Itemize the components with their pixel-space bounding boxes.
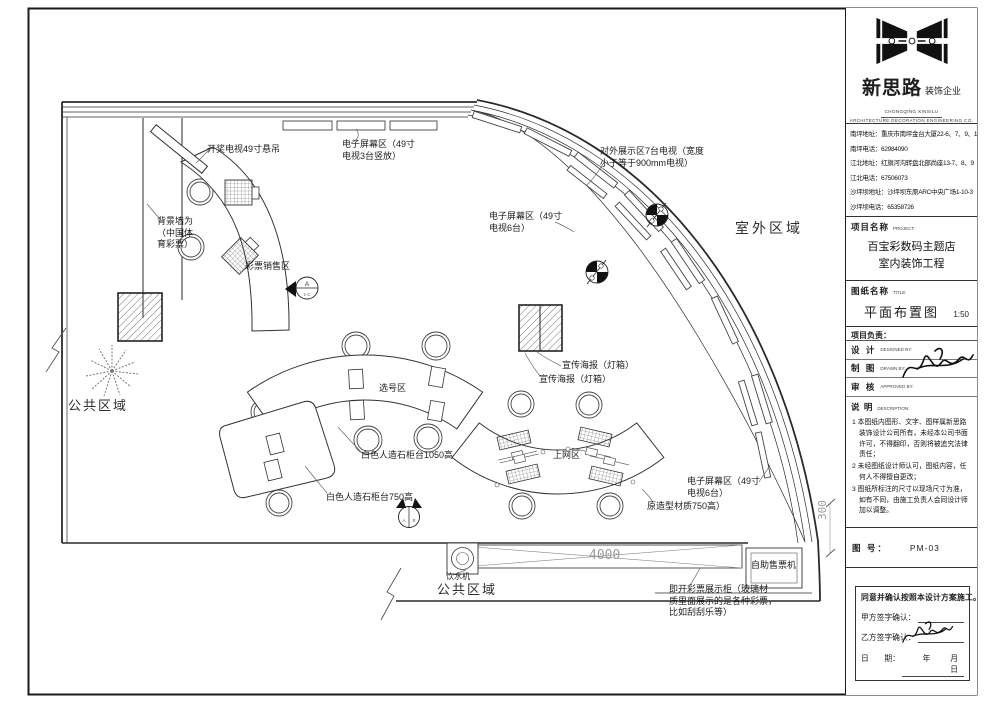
svg-text:A: A [402,518,405,523]
sheet-number-section: 图 号： PM-03 [846,528,977,568]
project-name: 百宝彩数码主题店 室内装饰工程 [846,239,977,272]
note-3: 3 图纸所标注的尺寸以现场尺寸为准，如有不同，由施工负责人会同设计师加以调整。 [852,485,973,517]
confirmation-section: 同意并确认按照本设计方案施工。 甲方签字确认： 乙方签字确认： 日 期： 年 月… [846,568,977,695]
designer-signature [897,343,977,391]
project-label: 项目名称 [851,221,889,233]
company-name-en1: CHONGQING XINSILU [881,109,943,118]
contact-line: 南坪电话：62984090 [850,143,977,158]
contact-line: 南坪地址：重庆市南坪金台大厦22-6、7、9、10 [850,128,977,143]
contact-line: 江北电话：67506073 [850,172,977,187]
water-dispenser [447,543,478,574]
party-b-signature [894,618,960,652]
company-contacts: 南坪地址：重庆市南坪金台大厦22-6、7、9、10 南坪电话：62984090 … [846,124,977,217]
drawing-title-section: 图纸名称 TITLE: 平面布置图 1:50 [846,281,977,327]
svg-text:B: B [412,518,415,523]
sheet-number-label: 图 号： [846,542,888,554]
ticket-vending-machine [746,548,802,588]
roles-section: 设 计DESIGNED BY: 制 图DRAWN BY: 审 核APPROVED… [846,341,977,397]
hanging-tv [151,125,208,174]
plant [86,345,138,396]
drawing-title-label-en: TITLE: [893,290,907,295]
contact-line: 沙坪坝电话：65358726 [850,201,977,216]
project-label-en: PROJECT: [893,226,915,231]
title-block: 新思路装饰企业 CHONGQING XINSILU ARCHITECTURE D… [845,8,977,695]
confirmation-box: 同意并确认按照本设计方案施工。 甲方签字确认： 乙方签字确认： 日 期： 年 月… [855,586,970,681]
contact-line: 沙坪坝地址：沙坪坝东原ARC中央广场1-10-3 [850,186,977,201]
drawing-scale: 1:50 [953,310,969,319]
drawing-title: 平面布置图 [864,302,939,321]
svg-text:1-C: 1-C [303,292,311,297]
description-label: 说 明 [851,401,873,413]
section-marker-1 [646,203,668,227]
confirmation-statement: 同意并确认按照本设计方案施工。 [861,592,964,603]
note-2: 2 未经图纸设计师认可，图纸内容，任何人不得擅自更改； [852,462,973,484]
date-units: 年 月 日 [902,653,964,677]
drawing-title-label: 图纸名称 [851,285,889,297]
project-section: 项目名称 PROJECT: 百宝彩数码主题店 室内装饰工程 [846,217,977,281]
contact-line: 江北地址：红旗河沟转盘北部尚座13-7、8、9 [850,157,977,172]
top-wall-tvs [283,121,437,130]
elevation-marker-b: A B [396,498,422,528]
drawing-sheet: A 1-C A B 开奖电视49寸悬吊电子屏幕区（49寸 电视3台竖放） [0,0,1000,703]
company-name-suffix: 装饰企业 [925,86,961,96]
company-logo-section: 新思路装饰企业 CHONGQING XINSILU ARCHITECTURE D… [846,8,977,124]
note-1: 1 本图纸内图形、文字、图样属新思路装饰设计公司所有，未经本公司书面许可，不得翻… [852,418,973,461]
dimension-300 [826,499,835,557]
instant-ticket-cabinet [450,545,742,568]
company-name-cn: 新思路 [862,78,922,99]
party-b-sign-row: 乙方签字确认： [861,632,964,643]
svg-text:A: A [305,281,310,288]
company-name: 新思路装饰企业 [846,73,977,100]
section-marker-2 [586,260,608,284]
pillar-hatched [118,293,162,341]
company-logo-icon [867,16,957,66]
sheet-border [29,9,977,695]
sheet-number: PM-03 [910,543,940,553]
description-notes: 1 本图纸内图形、文字、图样属新思路装饰设计公司所有，未经本公司书面许可，不得翻… [846,413,977,517]
description-label-en: DESCRIPTION: [877,406,909,411]
description-section: 说 明 DESCRIPTION: 1 本图纸内图形、文字、图样属新思路装饰设计公… [846,397,977,528]
elevation-marker-a: A 1-C [285,277,318,299]
date-row: 日 期： 年 月 日 [861,653,964,677]
pillars [118,293,562,351]
project-leader-label: 项目负责： [846,327,977,341]
